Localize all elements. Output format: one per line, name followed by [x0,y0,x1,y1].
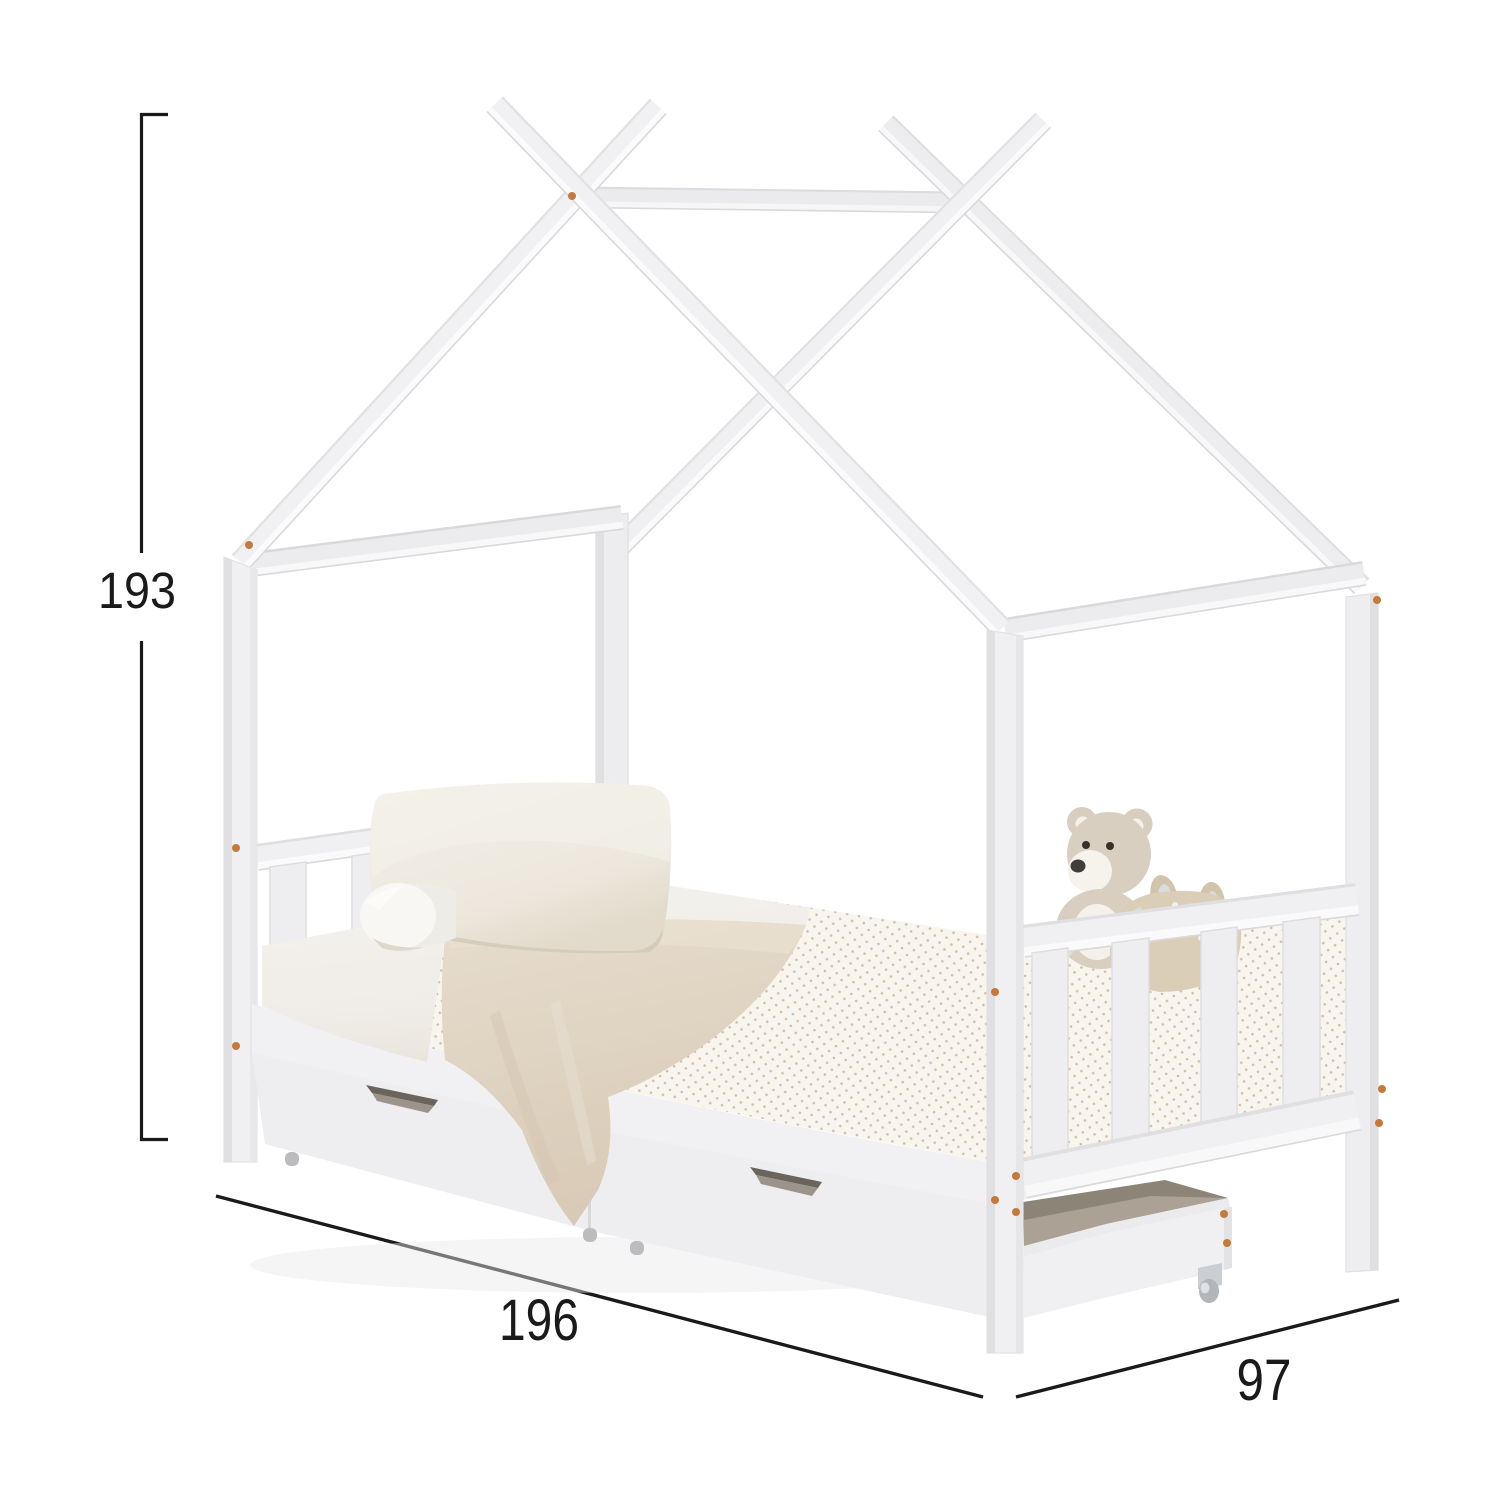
svg-text:196: 196 [499,1288,579,1353]
svg-text:97: 97 [1237,1348,1292,1413]
svg-text:193: 193 [98,562,176,619]
